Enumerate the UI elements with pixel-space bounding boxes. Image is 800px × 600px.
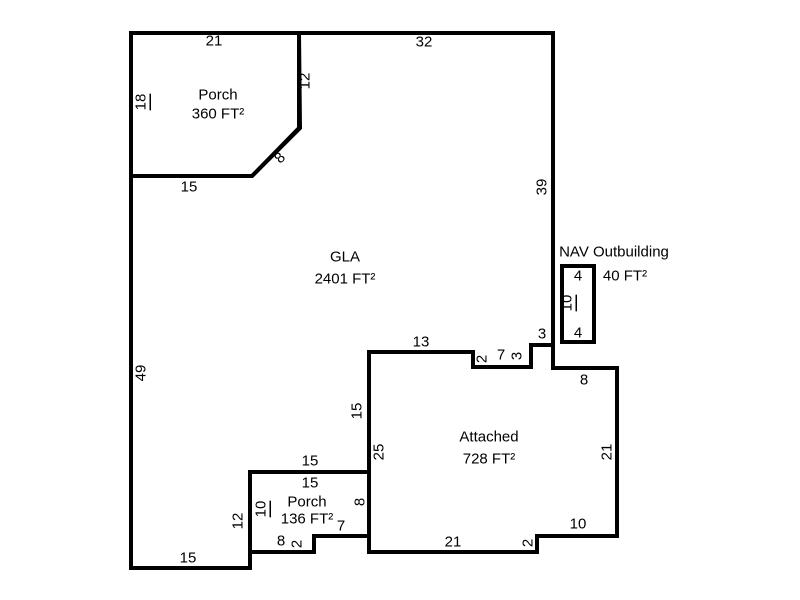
label-attached-area: 728 FT²	[463, 451, 516, 468]
dim-attached-right-21: 21	[599, 444, 616, 461]
dim-gla-notch-3v: 3	[509, 352, 526, 360]
dim-gla-step-12: 12	[230, 513, 247, 530]
dim-attached-bottom-10: 10	[570, 516, 587, 533]
label-porch-top-area: 360 FT²	[192, 106, 245, 123]
dim-porch-bottom-right-8: 8	[352, 498, 369, 506]
dim-attached-top-8: 8	[580, 372, 588, 389]
dim-attached-left-25: 25	[371, 444, 388, 461]
dim-porch-bottom-notch-7: 7	[337, 518, 345, 535]
label-porch-top-name: Porch	[198, 87, 237, 104]
dim-attached-notch-7: 7	[497, 347, 505, 364]
dim-porch-bottom-top-15: 15	[302, 475, 319, 492]
dim-gla-side-15: 15	[349, 403, 366, 420]
dim-outbuilding-side-10: 10	[559, 295, 576, 312]
dim-top-32: 32	[416, 34, 433, 51]
floor-plan-sketch: Porch360 FT²GLA2401 FT²NAV Outbuilding40…	[0, 0, 800, 600]
dim-porch-right-12: 12	[297, 73, 314, 90]
dim-gla-notch-3h: 3	[538, 326, 546, 343]
sketch-page: Porch360 FT²GLA2401 FT²NAV Outbuilding40…	[0, 0, 800, 600]
label-porch-bottom-area: 136 FT²	[281, 511, 334, 528]
dim-porch-bottom-15: 15	[181, 179, 198, 196]
dim-porch-bottom-8: 8	[277, 533, 285, 550]
dim-gla-bottomleft-15: 15	[180, 550, 197, 567]
dim-left-49: 49	[133, 365, 150, 382]
dim-right-39: 39	[534, 179, 551, 196]
dim-outbuilding-bottom-4: 4	[574, 325, 582, 342]
label-attached-name: Attached	[459, 429, 518, 446]
dim-porch-bottom-left-10: 10	[253, 501, 270, 518]
dim-porch-bottom-step-2: 2	[289, 540, 306, 548]
label-outbuilding-area: 40 FT²	[603, 268, 647, 285]
dim-attached-top-13: 13	[413, 334, 430, 351]
dim-attached-bottom-21: 21	[445, 534, 462, 551]
label-gla-area: 2401 FT²	[315, 271, 376, 288]
dim-attached-step-2b: 2	[520, 539, 537, 547]
dim-porch-left-18: 18	[133, 94, 150, 111]
dim-outbuilding-top-4: 4	[574, 268, 582, 285]
label-outbuilding-name: NAV Outbuilding	[559, 244, 669, 261]
dim-gla-bottom-15: 15	[302, 453, 319, 470]
dim-porch-top-21: 21	[206, 33, 223, 50]
label-gla-name: GLA	[330, 249, 360, 266]
label-porch-bottom-name: Porch	[287, 494, 326, 511]
dim-attached-step-2a: 2	[474, 355, 491, 363]
